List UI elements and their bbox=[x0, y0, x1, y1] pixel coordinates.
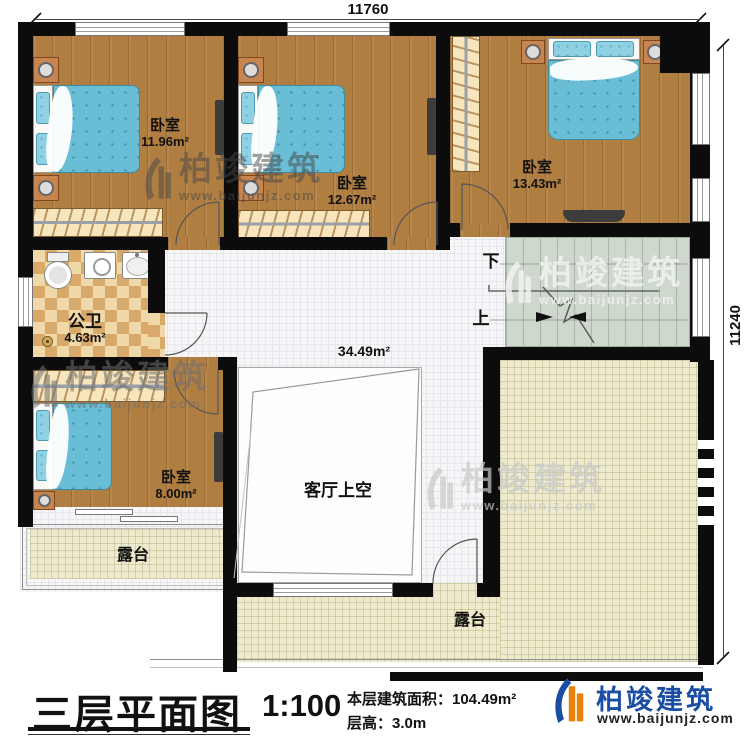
title-underline bbox=[28, 727, 250, 731]
bathroom-label: 公卫 4.63m² bbox=[35, 312, 135, 346]
wall bbox=[477, 583, 500, 597]
title-underline-thin bbox=[28, 734, 250, 735]
double-bed-icon bbox=[548, 38, 640, 140]
lamp-icon bbox=[38, 180, 54, 196]
window bbox=[287, 22, 390, 36]
wall bbox=[223, 583, 273, 597]
pillow bbox=[553, 41, 591, 57]
window bbox=[692, 258, 710, 337]
wall bbox=[18, 357, 168, 370]
sliding-door bbox=[75, 508, 178, 524]
bedroom4-label: 卧室 8.00m² bbox=[126, 470, 226, 501]
living-void-label: 客厅上空 bbox=[288, 481, 388, 500]
lamp-icon bbox=[38, 494, 51, 507]
plan-title: 三层平面图 bbox=[32, 682, 242, 740]
terrace-right-label: 露台 bbox=[430, 612, 510, 630]
room-name: 卧室 bbox=[126, 470, 226, 487]
lamp-icon bbox=[38, 62, 54, 78]
wall bbox=[698, 360, 714, 430]
wall bbox=[148, 250, 165, 313]
double-bed-icon bbox=[238, 85, 345, 173]
title-block: 三层平面图 1:100 本层建筑面积：104.49m² 层高：3.0m 柏竣建筑… bbox=[0, 670, 750, 743]
nightstand-icon bbox=[33, 491, 55, 510]
double-bed-icon bbox=[33, 403, 112, 490]
room-area: 12.67m² bbox=[302, 193, 402, 208]
wall bbox=[223, 357, 237, 672]
dimension-right-label: 11240 bbox=[727, 305, 744, 346]
wardrobe-icon bbox=[33, 208, 163, 237]
wall bbox=[436, 22, 450, 250]
wall bbox=[220, 237, 238, 250]
window bbox=[273, 583, 393, 597]
room-name: 公卫 bbox=[35, 312, 135, 331]
plan-scale: 1:100 bbox=[262, 688, 341, 724]
room-name: 露台 bbox=[430, 612, 510, 630]
background-patch bbox=[18, 592, 237, 662]
living-void bbox=[238, 367, 422, 583]
brand-logo-icon bbox=[545, 675, 591, 731]
room-area: 11.96m² bbox=[115, 135, 215, 150]
wall bbox=[660, 22, 710, 73]
nightstand-icon bbox=[521, 40, 545, 64]
door-threshold bbox=[168, 357, 218, 370]
window bbox=[692, 73, 710, 145]
bedroom2-label: 卧室 12.67m² bbox=[302, 176, 402, 207]
wardrobe-icon bbox=[238, 210, 370, 238]
floor-area-text: 本层建筑面积：104.49m² bbox=[347, 688, 516, 709]
wall bbox=[18, 237, 168, 250]
nightstand-icon bbox=[33, 175, 59, 201]
terrace-left-label: 露台 bbox=[93, 547, 173, 565]
wardrobe-icon bbox=[33, 370, 165, 402]
room-name: 客厅上空 bbox=[288, 481, 388, 500]
door-threshold bbox=[168, 237, 220, 250]
wall bbox=[483, 347, 703, 360]
tv-icon bbox=[563, 210, 625, 222]
dimension-top-label: 11760 bbox=[328, 1, 408, 18]
door-threshold bbox=[460, 223, 510, 237]
wall bbox=[224, 22, 238, 250]
stairs bbox=[505, 237, 690, 347]
door-threshold bbox=[387, 237, 437, 250]
stairs-down-label: 下 bbox=[480, 252, 502, 271]
bedroom1-label: 卧室 11.96m² bbox=[115, 118, 215, 149]
wall-dashed-opening bbox=[698, 430, 714, 525]
stairs-up-label: 上 bbox=[470, 309, 492, 328]
hall-area-label: 34.49m² bbox=[324, 344, 404, 360]
door-threshold bbox=[148, 313, 165, 357]
wall bbox=[510, 223, 690, 237]
wall bbox=[698, 525, 714, 665]
terrace-right-floor bbox=[500, 360, 698, 662]
nightstand-icon bbox=[238, 57, 264, 83]
window bbox=[18, 277, 33, 327]
nightstand-icon bbox=[33, 57, 59, 83]
brand-website: www.baijunjz.com bbox=[597, 710, 734, 726]
room-area: 8.00m² bbox=[126, 487, 226, 502]
dimension-line bbox=[723, 45, 724, 657]
dimension-line bbox=[35, 19, 700, 20]
wall bbox=[437, 237, 450, 250]
floor-plan: 11760 11240 卧室 11.96m² 卧室 12.67m² 卧室 13.… bbox=[0, 0, 750, 743]
door-threshold bbox=[433, 583, 477, 597]
wall bbox=[18, 22, 33, 527]
lamp-icon bbox=[525, 44, 541, 60]
room-name: 卧室 bbox=[115, 118, 215, 135]
wall bbox=[450, 223, 460, 237]
tv-icon bbox=[427, 98, 436, 155]
pillow bbox=[36, 410, 50, 441]
wardrobe-icon bbox=[452, 36, 480, 172]
room-area: 4.63m² bbox=[35, 331, 135, 346]
tv-icon bbox=[215, 100, 224, 155]
nightstand-icon bbox=[238, 175, 264, 201]
pillow bbox=[596, 41, 634, 57]
lamp-icon bbox=[243, 62, 259, 78]
room-name: 卧室 bbox=[302, 176, 402, 193]
hall-area-value: 34.49m² bbox=[324, 344, 404, 360]
window bbox=[692, 178, 710, 222]
room-area: 13.43m² bbox=[487, 177, 587, 192]
window bbox=[75, 22, 185, 36]
room-name: 露台 bbox=[93, 547, 173, 565]
bedroom3-label: 卧室 13.43m² bbox=[487, 160, 587, 191]
toilet-icon bbox=[44, 252, 72, 290]
wall bbox=[238, 237, 387, 250]
washing-machine-icon bbox=[84, 252, 116, 279]
wall bbox=[483, 360, 500, 595]
wall bbox=[393, 583, 433, 597]
room-name: 卧室 bbox=[487, 160, 587, 177]
lamp-icon bbox=[243, 180, 259, 196]
floor-height-text: 层高：3.0m bbox=[347, 712, 426, 733]
